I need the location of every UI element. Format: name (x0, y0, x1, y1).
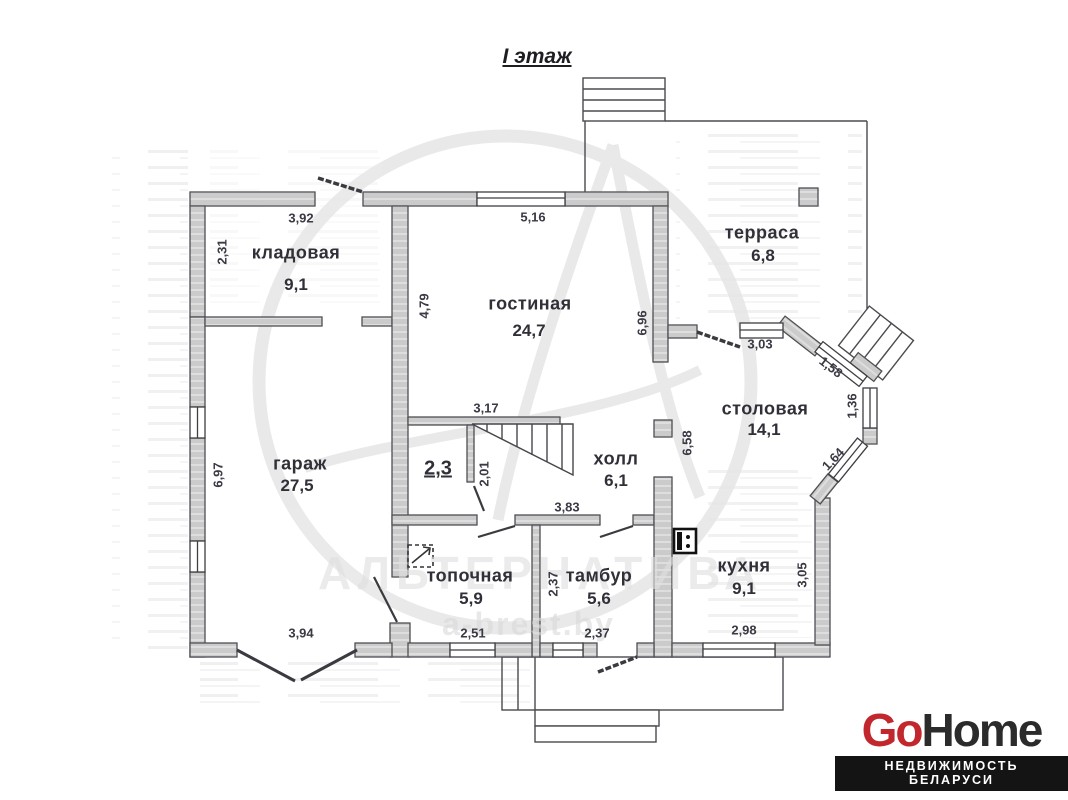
room-label-kitchen: кухня (717, 556, 770, 577)
room-label-garage: гараж (273, 454, 327, 475)
room-area-vestibule: 5,6 (587, 589, 611, 609)
room-area-boiler: 5,9 (459, 589, 483, 609)
room-area-living: 24,7 (512, 321, 545, 341)
room-label-boiler: топочная (427, 566, 514, 587)
dim-bay-mid: 1,36 (845, 393, 860, 418)
dim-storage-top: 3,92 (288, 211, 313, 226)
room-area-hall: 6,1 (604, 471, 628, 491)
dim-terrace-side: 6,96 (635, 310, 650, 335)
dim-dining-top: 3,03 (747, 337, 772, 352)
dim-living-left: 4,79 (417, 293, 432, 318)
dim-living-top: 5,16 (520, 210, 545, 225)
dim-kitchen-right: 3,05 (795, 562, 810, 587)
entry-porch (502, 657, 783, 742)
logo-home-text: Home (922, 704, 1042, 756)
dim-hall-bottom: 3,83 (554, 500, 579, 515)
dim-vestibule-left: 2,37 (546, 571, 561, 596)
room-label-vestibule: тамбур (566, 566, 633, 587)
dim-garage-bottom: 3,94 (288, 626, 313, 641)
room-area-terrace: 6,8 (751, 246, 775, 266)
dim-stairs-left: 2,01 (477, 461, 492, 486)
room-area-wc: 2,3 (424, 458, 452, 481)
floor-plan-drawing (0, 0, 1068, 800)
room-label-living: гостиная (488, 294, 571, 315)
dim-storage-left: 2,31 (215, 239, 230, 264)
room-label-hall: холл (594, 449, 639, 470)
page-title: I этаж (502, 45, 571, 69)
dim-boiler-bottom: 2,51 (460, 626, 485, 641)
room-area-kitchen: 9,1 (732, 579, 756, 599)
dim-vestibule-bottom: 2,37 (584, 626, 609, 641)
room-label-storage: кладовая (252, 243, 340, 264)
room-area-dining: 14,1 (747, 420, 780, 440)
room-area-garage: 27,5 (280, 476, 313, 496)
gohome-logo: GoHome НЕДВИЖИМОСТЬ БЕЛАРУСИ (835, 706, 1068, 791)
dim-stairs-top: 3,17 (473, 401, 498, 416)
logo-tagline: НЕДВИЖИМОСТЬ БЕЛАРУСИ (835, 756, 1068, 791)
boiler-symbol (408, 545, 433, 567)
room-area-storage: 9,1 (284, 275, 308, 295)
dim-garage-left: 6,97 (211, 462, 226, 487)
gohome-logo-word: GoHome (835, 706, 1068, 754)
room-label-dining: столовая (722, 399, 809, 420)
logo-go-text: Go (862, 704, 922, 756)
floor-plan-page: АЛЬТЕРНАТИВА a-brest.by (0, 0, 1068, 800)
dim-kitchen-bottom: 2,98 (731, 623, 756, 638)
room-label-terrace: терраса (725, 223, 800, 244)
stove-symbol (674, 529, 696, 553)
dim-dining-left: 6,58 (680, 430, 695, 455)
